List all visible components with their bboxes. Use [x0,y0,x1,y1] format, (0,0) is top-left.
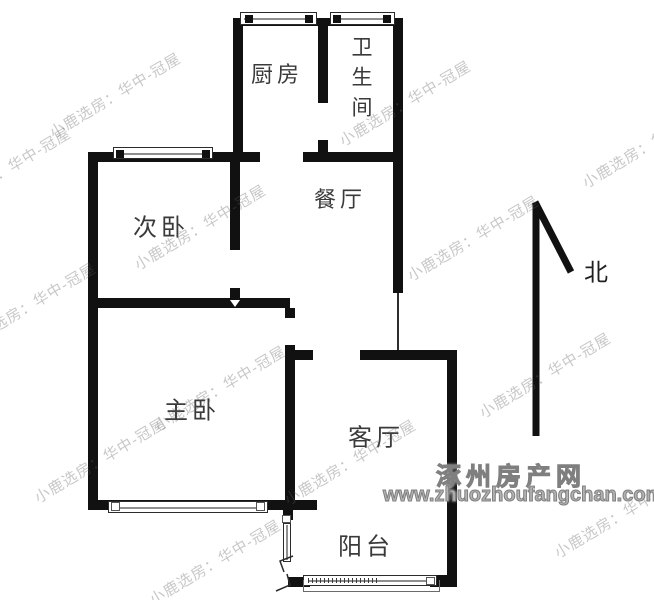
window-bed2-top [113,147,213,159]
window-cap [305,15,313,23]
diagonal-watermark: 小鹿选房：华中-冠屋 [475,327,614,422]
window-master-bottom [108,501,268,513]
room-label-dining-room: 餐厅 [314,182,366,214]
window-cap [245,15,253,23]
wall-dining-right [393,160,403,293]
window-cap [202,150,210,158]
diagonal-watermark: 小鹿选房：华中-冠屋 [0,257,100,352]
wall-bed2-dining [230,162,240,250]
window-cap [116,150,124,158]
room-label-master-bedroom: 主卧 [164,391,220,426]
diagonal-watermark: 小鹿选房：华中-冠屋 [30,412,169,507]
window-cap [282,515,291,523]
wall-band-right [303,152,403,162]
room-label-kitchen: 厨房 [251,57,303,89]
diagonal-watermark: 小鹿选房：华中-冠屋 [403,190,542,285]
wall-master-right-stub [285,308,295,318]
window-balcony-left [283,523,291,562]
wall-living-top [360,350,455,360]
wall-outer-left [88,152,98,510]
floor-plan: 厨房 卫生间 次卧 餐厅 主卧 客厅 阳台 北 小鹿选房：华中-冠屋 小鹿选房：… [0,0,654,600]
north-arrow-icon [535,202,571,436]
room-label-bathroom: 卫生间 [346,36,376,126]
room-label-second-bedroom: 次卧 [133,208,189,243]
north-label: 北 [584,253,608,288]
window-cap [333,15,341,23]
wall-bed2-bottom [88,298,290,308]
window-cap [111,502,120,511]
window-cap [256,502,265,511]
wall-master-right [285,345,295,507]
room-label-living-room: 客厅 [348,418,404,453]
wall-dining-right-thin [397,293,399,352]
site-watermark-url: www.zhuozhoufangchan.com [383,484,654,507]
wall-kitchen-bath-upper [318,18,328,103]
window-cap [383,15,391,23]
wall-bath-right [393,18,403,160]
diagonal-watermark: 小鹿选房：华中-冠屋 [45,47,184,142]
diagonal-watermark: 小鹿选房：华中-冠屋 [0,122,75,217]
room-label-balcony: 阳台 [338,527,394,562]
diagonal-watermark: 小鹿选房：华中-冠屋 [578,97,654,192]
wall-kitchen-left [233,18,243,162]
diagonal-watermark: 小鹿选房：华中-冠屋 [145,514,284,600]
door-notch [230,300,240,307]
wall-living-door-stub [295,350,313,360]
balcony-sill-line [303,580,440,592]
